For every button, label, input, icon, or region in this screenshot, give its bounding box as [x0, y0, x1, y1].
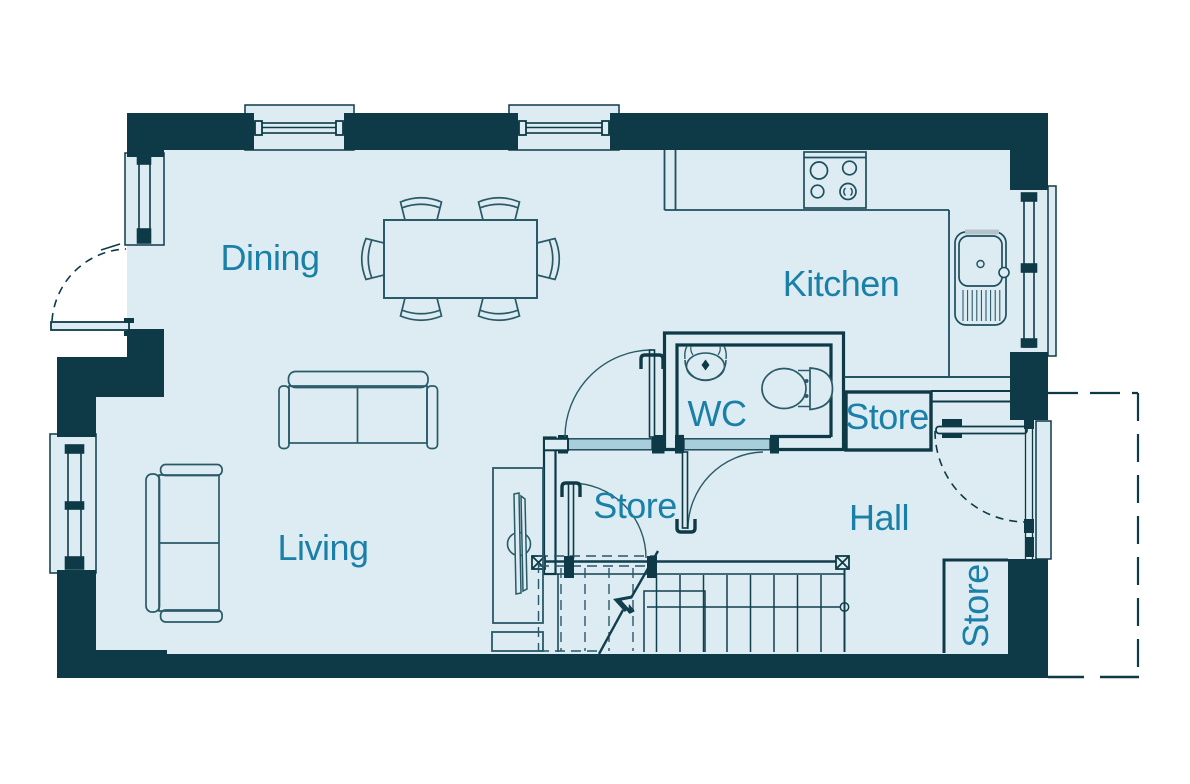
svg-text:Kitchen: Kitchen: [783, 263, 900, 304]
svg-text:Store: Store: [593, 485, 677, 526]
svg-text:Dining: Dining: [220, 237, 319, 278]
svg-text:Hall: Hall: [849, 497, 909, 538]
svg-text:Store: Store: [955, 564, 996, 648]
svg-text:Store: Store: [845, 396, 929, 437]
svg-text:Living: Living: [277, 527, 368, 568]
svg-text:WC: WC: [688, 393, 747, 434]
